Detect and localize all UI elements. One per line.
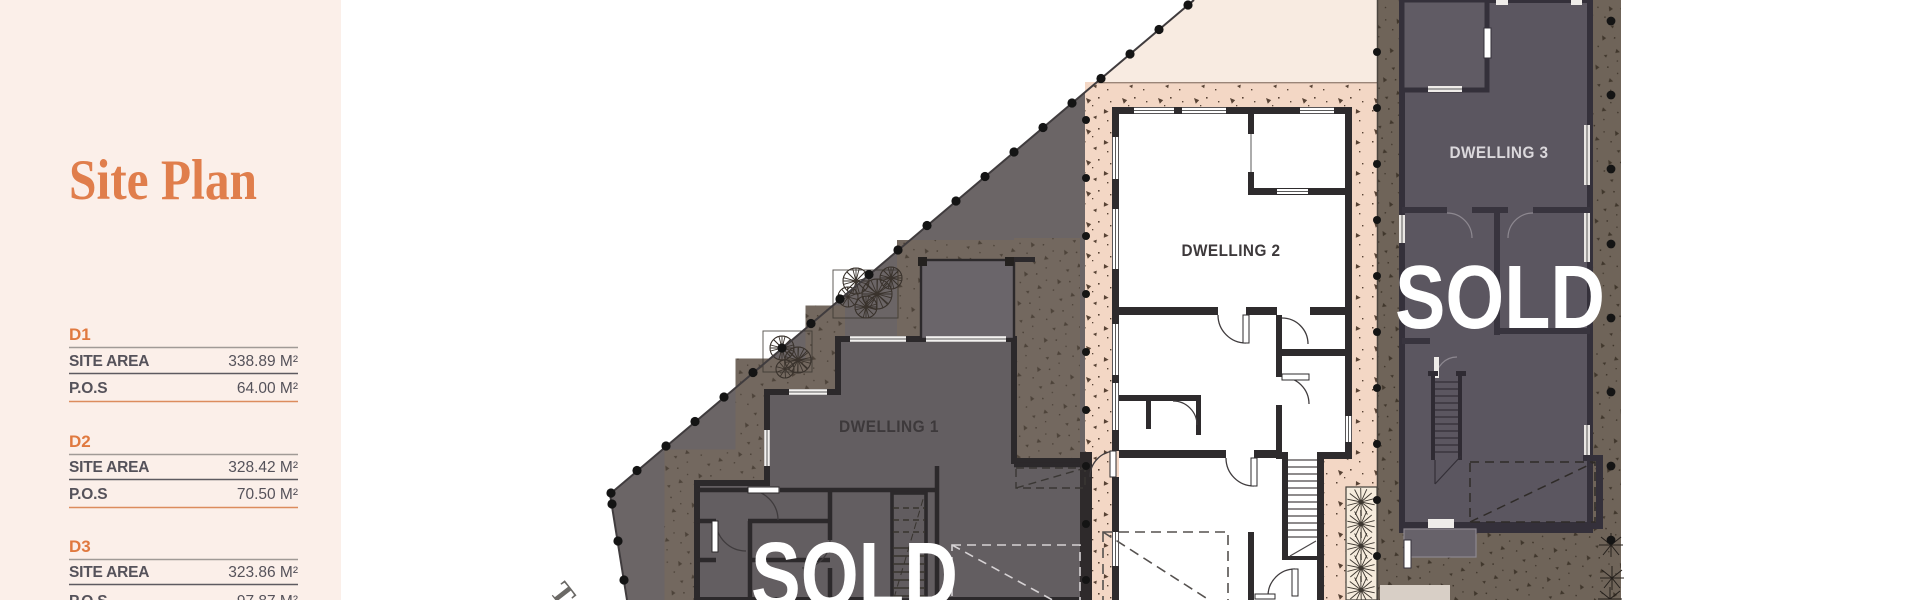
svg-text:323.86 M²: 323.86 M² <box>228 564 298 581</box>
svg-text:64.00 M²: 64.00 M² <box>237 380 298 397</box>
svg-text:DWELLING 1: DWELLING 1 <box>839 417 939 436</box>
svg-text:D2: D2 <box>69 432 91 451</box>
svg-text:328.42 M²: 328.42 M² <box>228 459 298 476</box>
svg-text:70.50 M²: 70.50 M² <box>237 486 298 503</box>
svg-text:P.O.S: P.O.S <box>69 593 107 600</box>
svg-text:SITE AREA: SITE AREA <box>69 353 149 370</box>
svg-text:SOLD: SOLD <box>1395 248 1605 348</box>
svg-text:D3: D3 <box>69 537 91 556</box>
svg-text:P.O.S: P.O.S <box>69 486 107 503</box>
svg-text:SOLD: SOLD <box>751 523 958 600</box>
svg-text:T: T <box>543 576 581 600</box>
svg-text:D1: D1 <box>69 325 91 344</box>
svg-text:DWELLING 2: DWELLING 2 <box>1182 241 1281 260</box>
svg-text:P.O.S: P.O.S <box>69 380 107 397</box>
svg-text:Site Plan: Site Plan <box>69 149 257 212</box>
svg-text:97.87 M²: 97.87 M² <box>237 593 298 600</box>
svg-text:SITE AREA: SITE AREA <box>69 564 149 581</box>
svg-text:SITE AREA: SITE AREA <box>69 459 149 476</box>
svg-text:DWELLING 3: DWELLING 3 <box>1450 143 1549 162</box>
svg-text:338.89 M²: 338.89 M² <box>228 353 298 370</box>
